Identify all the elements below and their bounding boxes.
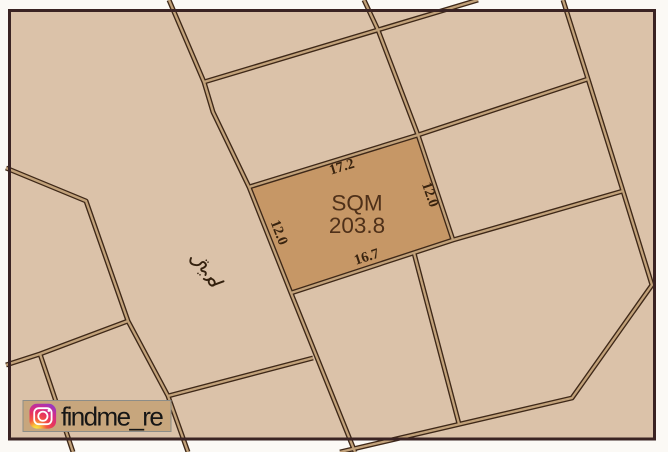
svg-text:findme_re: findme_re	[61, 402, 163, 432]
svg-text:SQM: SQM	[331, 191, 382, 216]
svg-text:203.8: 203.8	[329, 213, 385, 238]
